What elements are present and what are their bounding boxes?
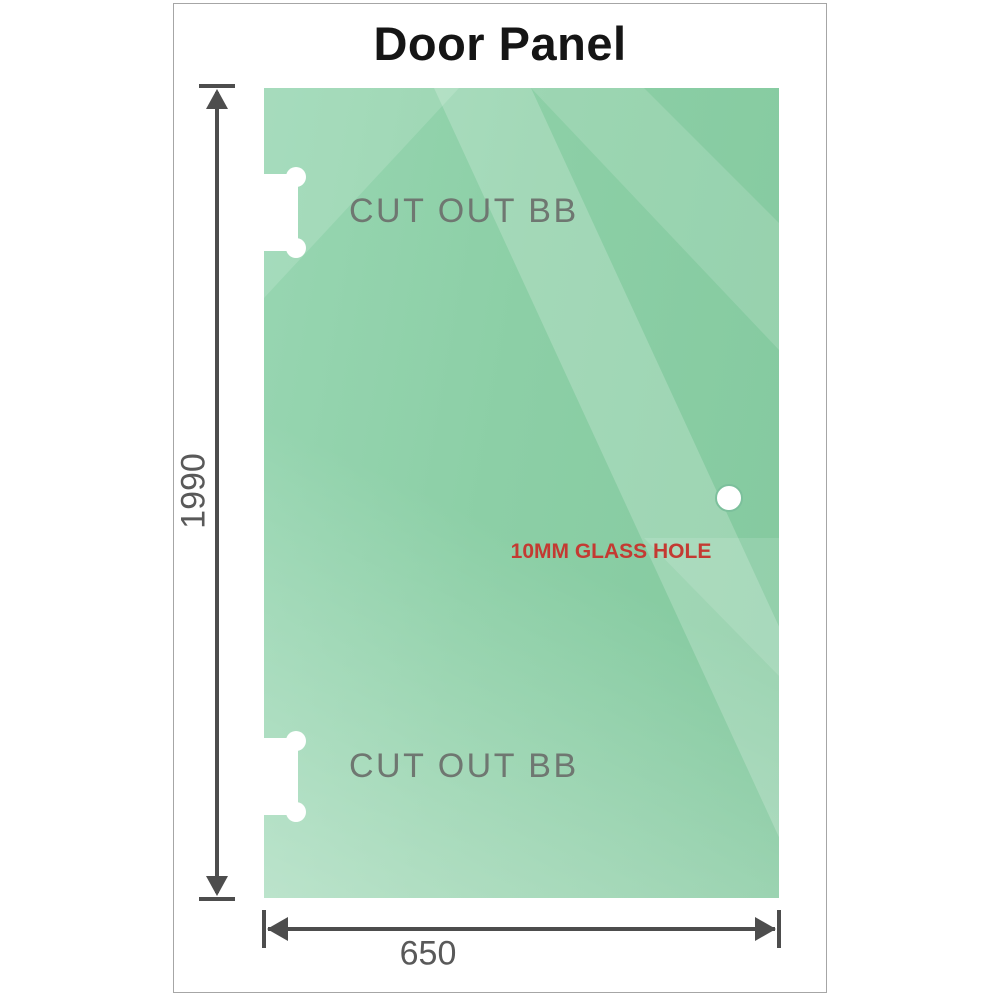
cutout-top-label: CUT OUT BB bbox=[349, 192, 579, 231]
page-title: Door Panel bbox=[174, 16, 826, 71]
cutout-top bbox=[264, 167, 310, 259]
glass-panel: CUT OUT BB CUT OUT BB 10MM GLASS HOLE bbox=[264, 88, 779, 898]
dimension-tick-bottom bbox=[199, 897, 235, 901]
width-dimension-line bbox=[268, 927, 775, 931]
dimension-tick-top bbox=[199, 84, 235, 88]
width-dimension bbox=[262, 910, 781, 950]
glass-hole-label: 10MM GLASS HOLE bbox=[511, 540, 712, 564]
arrow-right-icon bbox=[755, 917, 776, 941]
height-dimension-line bbox=[215, 92, 219, 893]
diagram-page: Door Panel 1990 CUT OUT BB CUT OUT BB 10… bbox=[173, 3, 827, 993]
cutout-bottom-label: CUT OUT BB bbox=[349, 747, 579, 786]
dimension-tick-left bbox=[262, 910, 266, 948]
glass-hole bbox=[715, 484, 743, 512]
cutout-bottom bbox=[264, 731, 310, 823]
width-dimension-label: 650 bbox=[400, 935, 457, 974]
height-dimension-label: 1990 bbox=[175, 453, 214, 529]
dimension-tick-right bbox=[777, 910, 781, 948]
arrow-down-icon bbox=[206, 876, 228, 896]
